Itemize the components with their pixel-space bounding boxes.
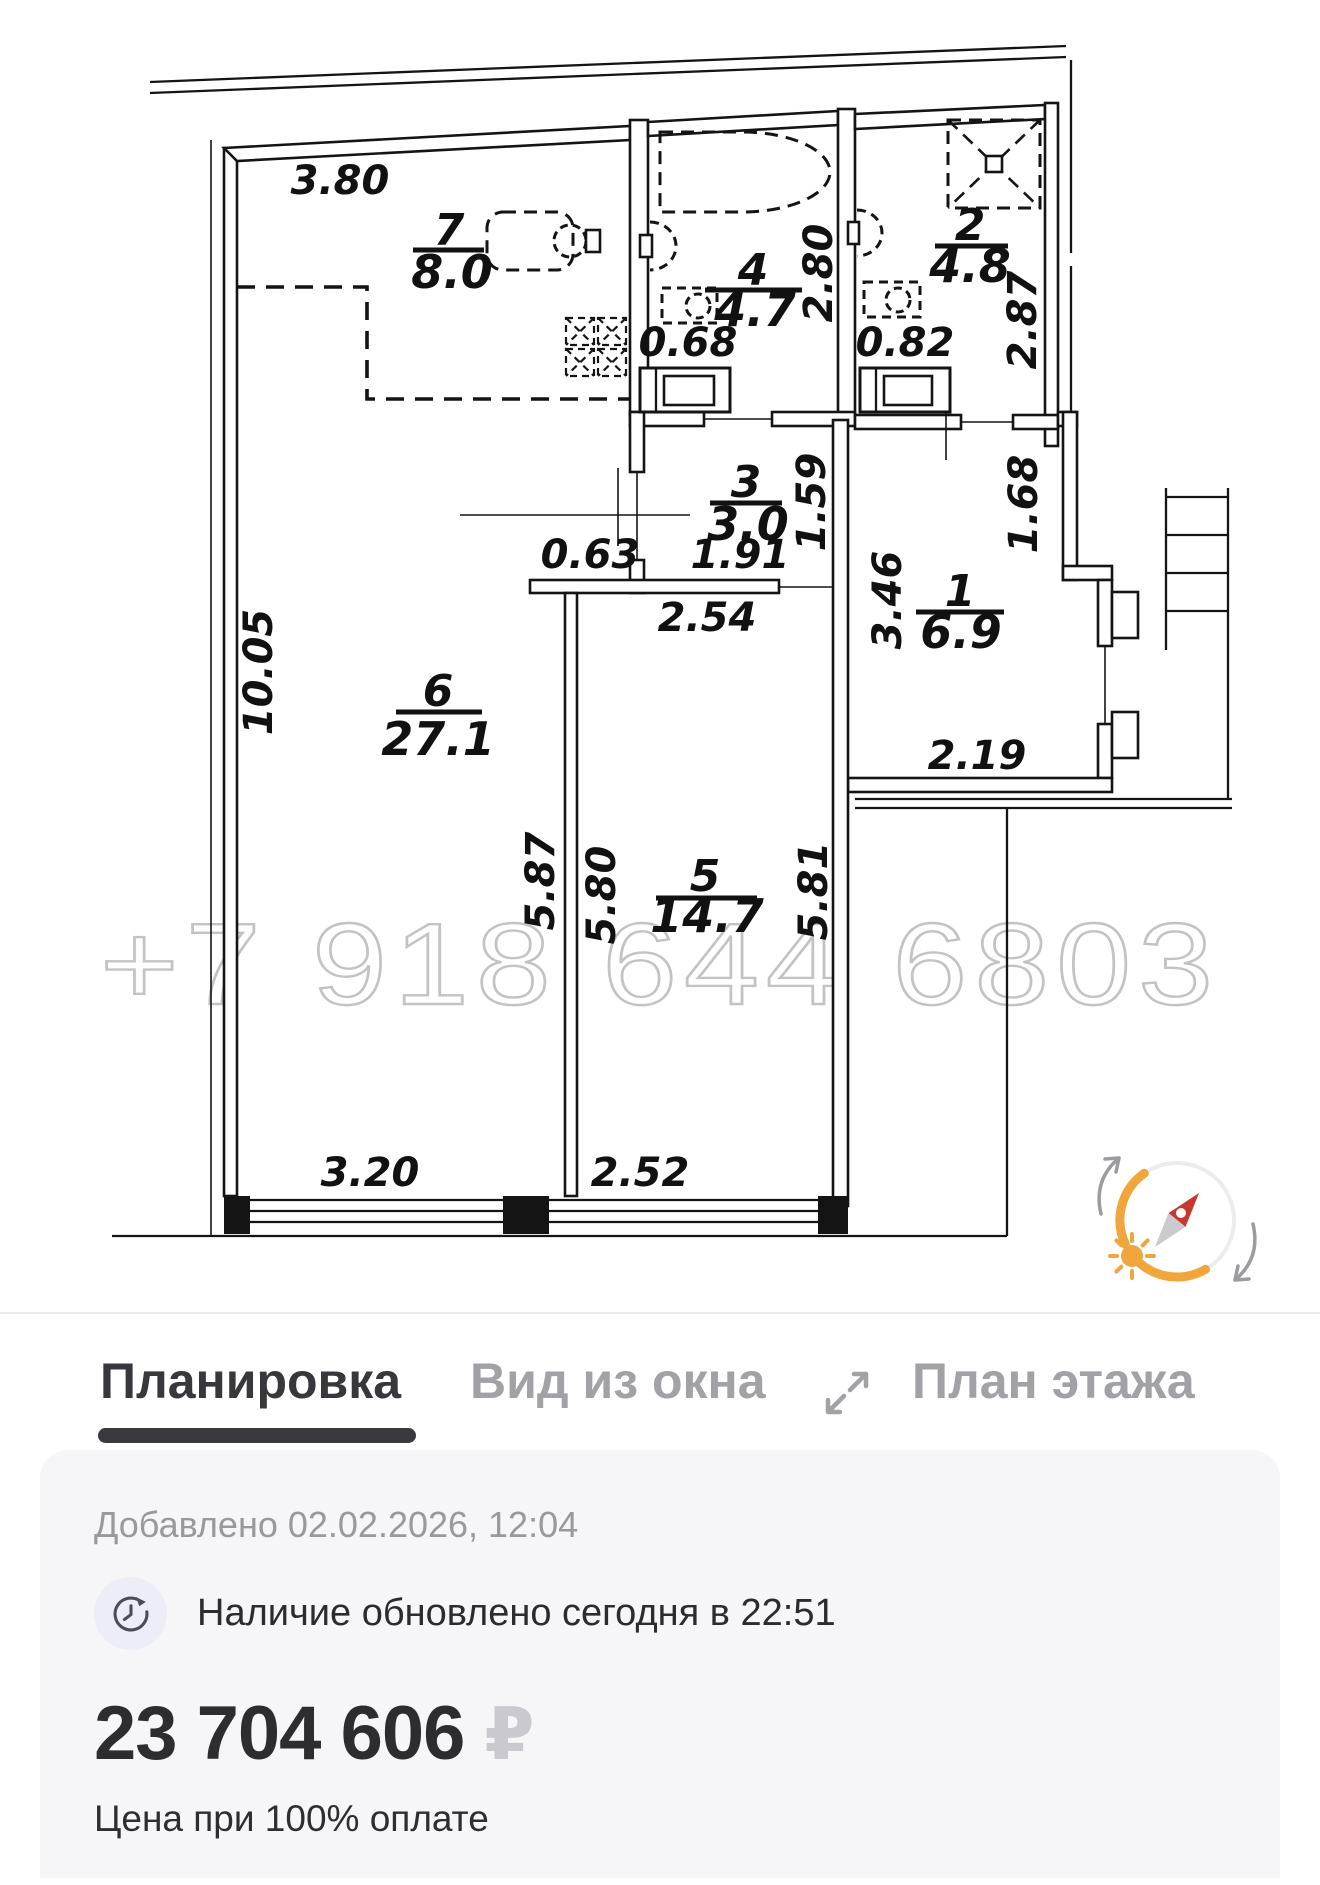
svg-text:0.63: 0.63	[541, 532, 640, 578]
sun-icon	[1110, 1234, 1154, 1278]
svg-text:2.52: 2.52	[591, 1150, 690, 1196]
price-row: 23 704 606₽	[94, 1690, 534, 1777]
svg-text:1.68: 1.68	[1001, 455, 1047, 554]
tab-window-view[interactable]: Вид из окна	[470, 1352, 766, 1410]
tab-floor-plan[interactable]: План этажа	[912, 1352, 1195, 1410]
svg-text:5.87: 5.87	[518, 831, 564, 930]
boiler2-icon	[864, 282, 920, 317]
room-label-7: 7 8.0	[411, 205, 493, 299]
floor-plan-image[interactable]: +7 918 644 6803	[0, 0, 1320, 1300]
room-label-1: 1 6.9	[916, 566, 1004, 659]
bathtub-icon	[660, 132, 830, 212]
added-date: Добавлено 02.02.2026, 12:04	[94, 1504, 578, 1546]
svg-text:3.46: 3.46	[865, 551, 911, 650]
svg-text:3.20: 3.20	[321, 1150, 420, 1196]
shower-tray-icon	[948, 120, 1040, 208]
svg-text:0.82: 0.82	[856, 320, 955, 366]
svg-text:0.68: 0.68	[639, 320, 738, 366]
boiler-icon	[662, 288, 717, 323]
svg-text:5.81: 5.81	[791, 842, 837, 941]
svg-text:10.05: 10.05	[236, 609, 282, 736]
active-tab-underline	[98, 1428, 416, 1443]
svg-text:14.7: 14.7	[650, 889, 764, 943]
washing-machine2-icon	[860, 368, 950, 412]
room-label-2: 2 4.8	[928, 200, 1011, 293]
listing-info-card: Добавлено 02.02.2026, 12:04 Наличие обно…	[40, 1450, 1280, 1878]
svg-text:4.8: 4.8	[928, 239, 1011, 293]
price-value: 23 704 606	[94, 1691, 464, 1776]
svg-text:6.9: 6.9	[920, 605, 1002, 659]
clock-history-icon	[109, 1592, 153, 1636]
compass-icon[interactable]	[1099, 1158, 1255, 1280]
svg-text:2.87: 2.87	[1000, 270, 1046, 369]
svg-text:6: 6	[423, 666, 454, 717]
listing-page: +7 918 644 6803	[0, 0, 1320, 1885]
svg-text:2.54: 2.54	[658, 595, 757, 641]
availability-text: Наличие обновлено сегодня в 22:51	[197, 1592, 836, 1635]
kitchen-sink-icon	[487, 212, 600, 270]
svg-text:27.1: 27.1	[381, 712, 495, 766]
price-note: Цена при 100% оплате	[94, 1798, 489, 1840]
expand-icon[interactable]	[820, 1366, 874, 1420]
availability-icon-badge	[94, 1577, 167, 1650]
room-label-6: 6 27.1	[381, 666, 495, 766]
svg-text:1.59: 1.59	[789, 453, 835, 552]
svg-text:8.0: 8.0	[411, 245, 493, 299]
svg-text:1.91: 1.91	[691, 532, 790, 578]
svg-text:3.80: 3.80	[291, 158, 390, 204]
stove-icon	[566, 318, 626, 376]
washing-machine-icon	[640, 368, 730, 412]
svg-text:2.80: 2.80	[796, 224, 842, 323]
svg-text:5.80: 5.80	[579, 846, 625, 945]
tabs-top-divider	[0, 1312, 1320, 1314]
kitchen-zone-dashed	[237, 287, 630, 399]
svg-text:2.19: 2.19	[928, 733, 1027, 779]
tab-layout[interactable]: Планировка	[100, 1352, 401, 1410]
currency-symbol: ₽	[484, 1692, 534, 1776]
room-label-5: 5 14.7	[650, 851, 764, 943]
availability-row: Наличие обновлено сегодня в 22:51	[94, 1577, 836, 1650]
